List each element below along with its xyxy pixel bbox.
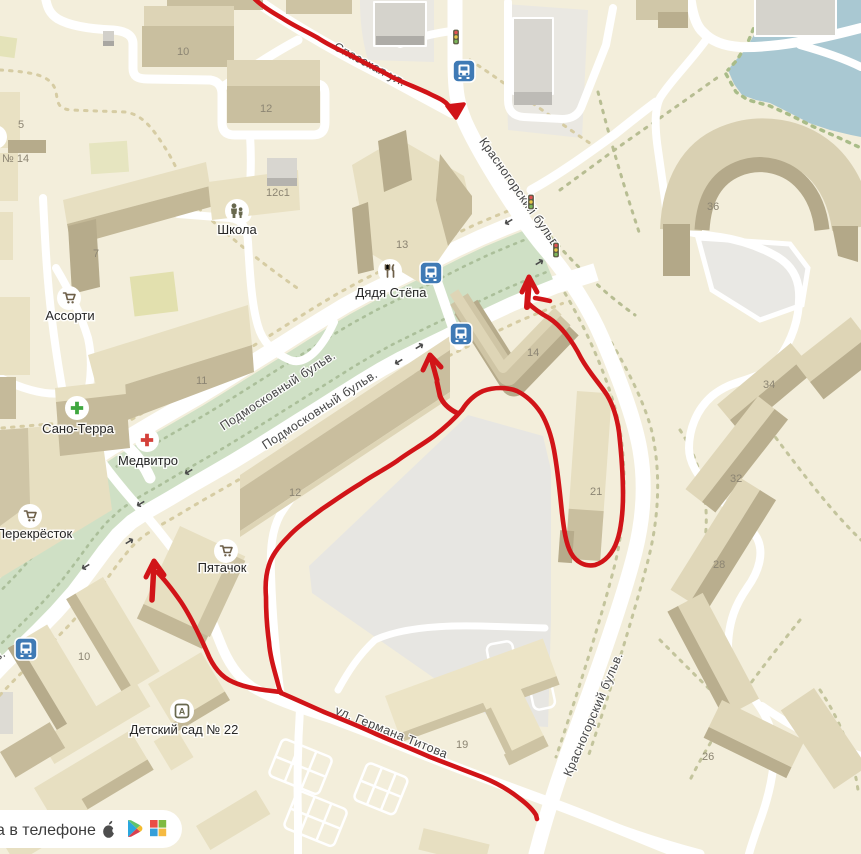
svg-text:а в телефоне: а в телефоне (0, 822, 96, 839)
svg-text:32: 32 (730, 473, 742, 485)
svg-text:10: 10 (78, 651, 90, 663)
svg-text:Школа: Школа (217, 222, 257, 237)
svg-text:Детский сад № 22: Детский сад № 22 (130, 722, 239, 737)
svg-text:Перекрёсток: Перекрёсток (0, 526, 73, 541)
svg-text:13: 13 (396, 239, 408, 251)
svg-text:5: 5 (18, 119, 24, 131)
svg-text:36: 36 (707, 201, 719, 213)
svg-text:26: 26 (702, 751, 714, 763)
svg-text:11: 11 (196, 375, 207, 387)
svg-text:А: А (179, 707, 186, 717)
svg-text:7: 7 (93, 248, 99, 260)
svg-text:Медвитро: Медвитро (118, 453, 178, 468)
svg-text:№ 14: № 14 (2, 153, 29, 165)
svg-text:12: 12 (260, 103, 272, 115)
svg-text:19: 19 (456, 739, 468, 751)
svg-text:Дядя Стёпа: Дядя Стёпа (356, 285, 428, 300)
svg-text:Сано-Терра: Сано-Терра (42, 421, 114, 436)
svg-text:Пятачок: Пятачок (198, 560, 247, 575)
svg-text:12с1: 12с1 (266, 187, 290, 199)
svg-text:14: 14 (527, 347, 539, 359)
svg-text:21: 21 (590, 486, 602, 498)
svg-text:12: 12 (289, 487, 301, 499)
svg-text:10: 10 (177, 46, 189, 58)
svg-text:34: 34 (763, 379, 775, 391)
svg-text:28: 28 (713, 559, 725, 571)
svg-text:Ассорти: Ассорти (45, 308, 94, 323)
